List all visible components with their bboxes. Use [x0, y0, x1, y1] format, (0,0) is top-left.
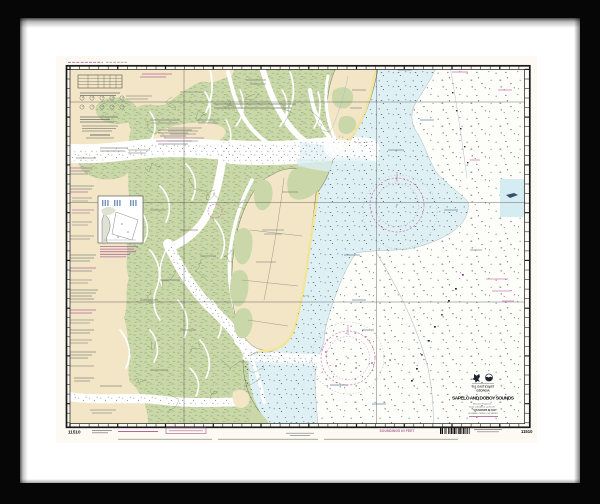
svg-text:Scale 1:40,000 at Lat 31°25': Scale 1:40,000 at Lat 31°25' [469, 405, 496, 408]
svg-text:11510: 11510 [68, 430, 81, 435]
svg-text:SAPELO AND DOBOY SOUNDS: SAPELO AND DOBOY SOUNDS [452, 395, 515, 401]
svg-text:GEORGIA: GEORGIA [476, 389, 489, 393]
svg-text:11510: 11510 [521, 429, 533, 434]
svg-text:AT MEAN LOWER LOW WATER: AT MEAN LOWER LOW WATER [468, 412, 498, 415]
svg-text:SOUNDINGS IN FEET: SOUNDINGS IN FEET [380, 429, 416, 433]
svg-text:Mercator Projection: Mercator Projection [473, 403, 492, 406]
svg-text:SOUNDINGS IN FEET: SOUNDINGS IN FEET [473, 410, 497, 412]
